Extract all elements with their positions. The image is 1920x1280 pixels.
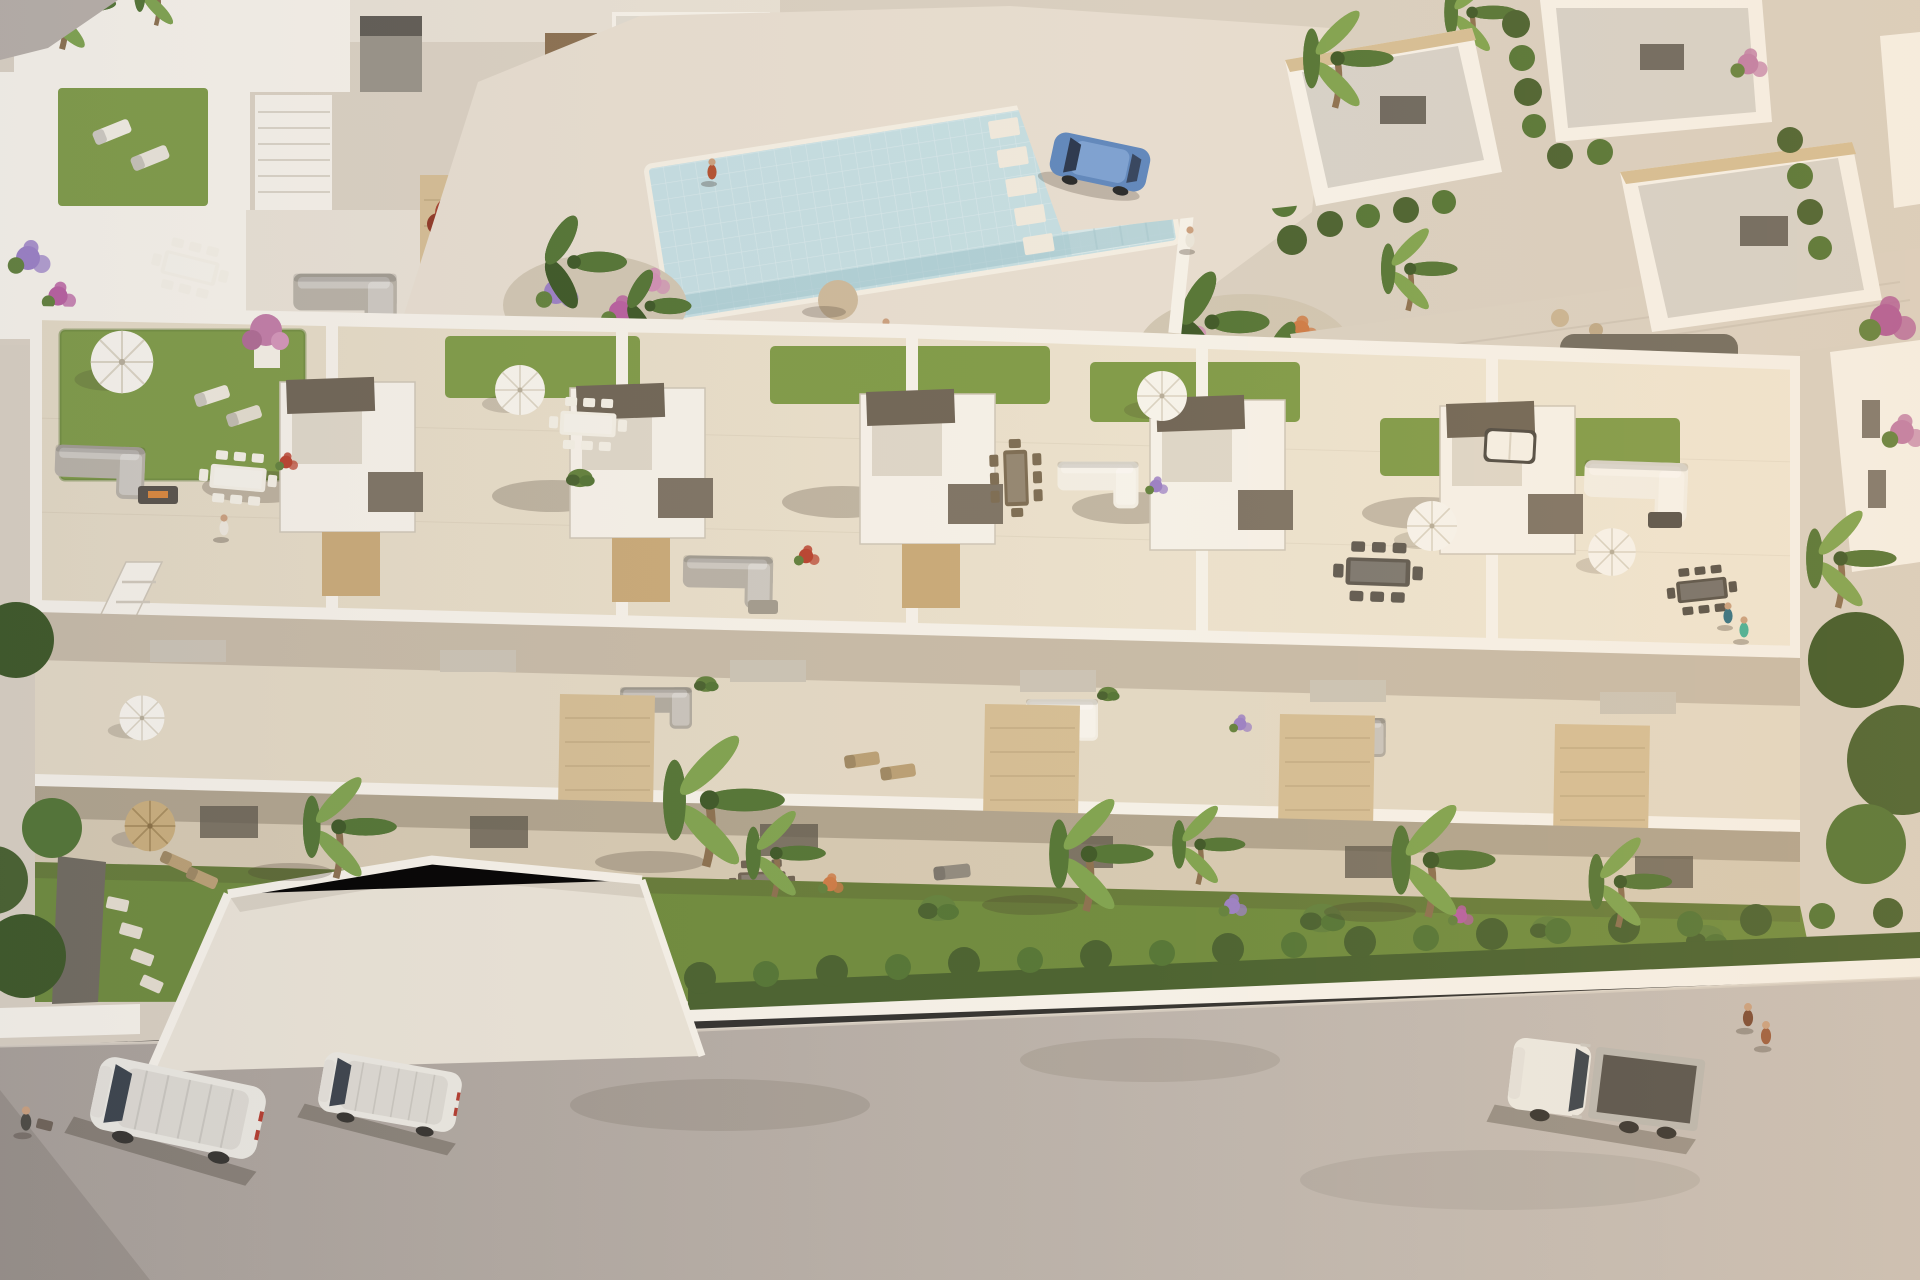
scene-svg: Aerial 3D render of a modern white resid… (0, 0, 1920, 1280)
light-overlay (0, 0, 1920, 1280)
aerial-render: Aerial 3D render of a modern white resid… (0, 0, 1920, 1280)
